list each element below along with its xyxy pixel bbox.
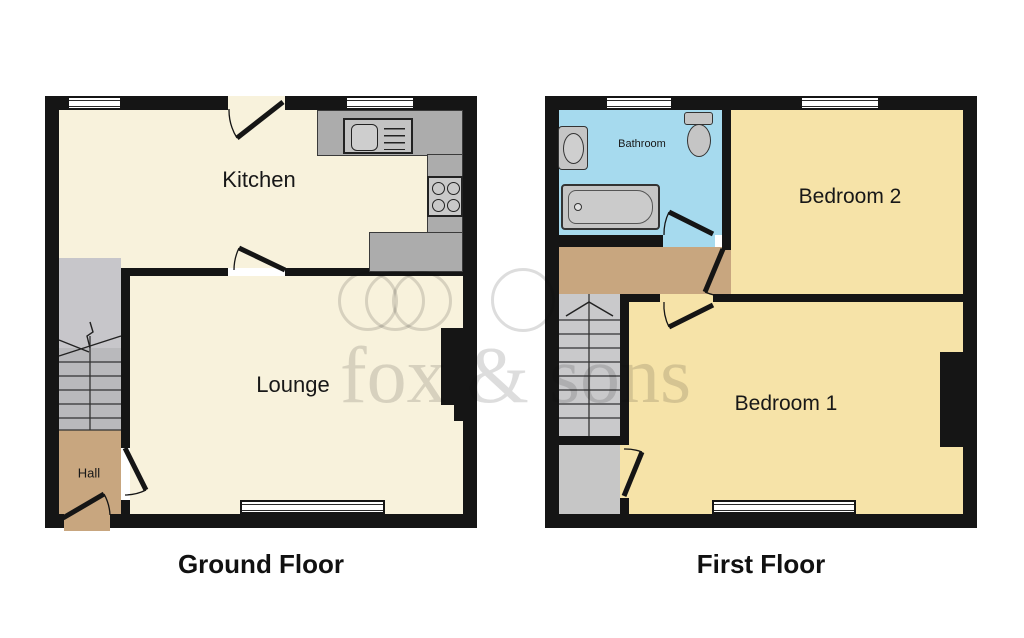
watermark-ring-icon <box>392 271 452 331</box>
watermark-text: fox & sons <box>340 336 691 416</box>
wall <box>545 514 977 528</box>
wall-stairs-lounge <box>121 268 130 448</box>
kitchen-sink-icon <box>343 118 413 154</box>
bedroom1-label: Bedroom 1 <box>735 392 838 416</box>
front-door-opening <box>64 514 110 531</box>
bathroom-label: Bathroom <box>618 138 666 150</box>
chimney-breast <box>940 352 963 447</box>
stairwell-upper-ground <box>59 258 121 348</box>
floor-plan-first: Bathroom Bedroom 2 Bedroom 1 <box>545 96 977 528</box>
kitchen-label: Kitchen <box>222 167 295 193</box>
sink-drainer-icon <box>384 128 405 150</box>
floorplan-canvas: Kitchen Lounge Hall <box>0 0 1024 638</box>
hob-icon <box>427 176 463 217</box>
back-door-opening <box>228 96 285 110</box>
lounge-label: Lounge <box>256 372 329 398</box>
bathroom-door-opening <box>663 235 715 247</box>
wall-kitchen-lounge <box>121 268 228 276</box>
watermark-ring-icon <box>491 268 555 332</box>
wall-stairwell-bottom <box>559 436 629 445</box>
sink-basin-icon <box>351 124 378 151</box>
window <box>240 500 385 514</box>
wall <box>45 96 59 528</box>
wall-bathroom-bedroom2 <box>722 110 731 250</box>
wall-stairs-lounge <box>121 500 130 514</box>
wall-bedroom2-bedroom1 <box>713 294 963 302</box>
bathtub-icon <box>561 184 660 230</box>
washbasin-icon <box>558 126 588 170</box>
bedroom2-door-opening <box>722 250 731 295</box>
landing <box>559 247 722 294</box>
cupboard <box>559 445 620 514</box>
wall-bathroom <box>559 235 663 247</box>
wall <box>963 96 977 528</box>
ground-floor-caption: Ground Floor <box>141 549 381 580</box>
cupboard-door-opening <box>620 445 629 498</box>
window <box>712 500 856 514</box>
window <box>605 96 673 110</box>
kitchen-counter <box>369 232 463 272</box>
bedroom1-door-opening <box>660 294 713 302</box>
bedroom2-label: Bedroom 2 <box>799 185 902 209</box>
toilet-bowl-icon <box>687 124 711 157</box>
wall <box>463 96 477 528</box>
wall <box>110 514 477 528</box>
wall-stairs-bedroom1 <box>620 498 629 514</box>
stairs-ground <box>59 348 121 430</box>
window <box>345 96 415 110</box>
first-floor-caption: First Floor <box>641 549 881 580</box>
hall-label: Hall <box>78 466 100 481</box>
window <box>67 96 122 110</box>
window <box>800 96 880 110</box>
